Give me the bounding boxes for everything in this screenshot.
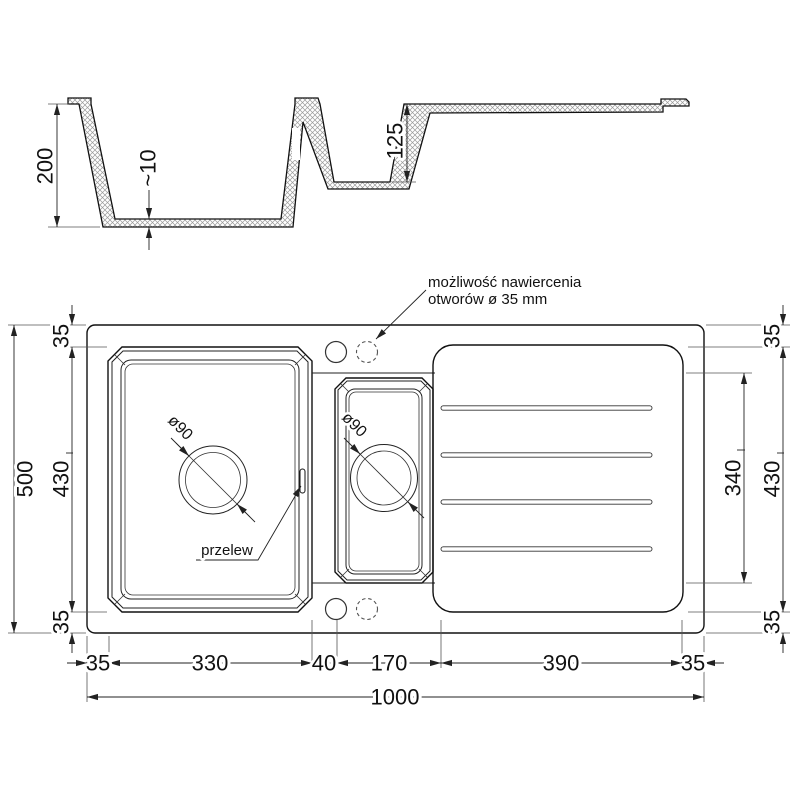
section-depth-value: 200 xyxy=(33,148,58,185)
drain-main-value: ø90 xyxy=(164,412,196,444)
overflow-slot xyxy=(300,469,305,493)
section-material-profile xyxy=(68,98,689,227)
bottom-chain-3: 40 xyxy=(312,651,336,676)
bottom-chain-4: 170 xyxy=(371,651,408,676)
tap-hole-top xyxy=(326,342,347,363)
sink-outer-edge xyxy=(87,325,704,633)
dim-floor-thickness: ~10 xyxy=(136,149,161,250)
dim-drain-small: ø90 xyxy=(338,409,424,518)
drill-note-line1: możliwość nawiercenia xyxy=(428,274,582,291)
right-chain-bottom: 35 xyxy=(760,610,785,634)
bottom-chain-5: 390 xyxy=(543,651,580,676)
bottom-chain-6: 35 xyxy=(681,651,705,676)
right-chain-mid: 430 xyxy=(760,461,785,498)
left-chain-bottom: 35 xyxy=(49,610,74,634)
overflow-text: przelew xyxy=(201,542,253,559)
overflow-label: przelew xyxy=(196,486,301,560)
cross-section-view: 200 ~10 125 xyxy=(33,98,690,250)
dim-drainer-span: 340 xyxy=(721,373,746,583)
bottom-chain-1: 35 xyxy=(86,651,110,676)
bottom-chain-2: 330 xyxy=(192,651,229,676)
dim-right-chain: 35 430 35 xyxy=(760,305,785,653)
tap-hole-bottom xyxy=(326,599,347,620)
dim-overall-height: 500 xyxy=(13,325,38,633)
left-chain-top: 35 xyxy=(49,324,74,348)
overall-height-value: 500 xyxy=(13,461,38,498)
dim-drain-main: ø90 xyxy=(164,412,255,522)
overflow-channel-gap xyxy=(292,128,300,160)
tap-hole-optional-top xyxy=(357,342,378,363)
small-bowl-depth-value: 125 xyxy=(383,123,408,160)
dim-left-chain: 35 430 35 xyxy=(49,305,74,653)
plan-view: możliwość nawiercenia otworów ø 35 mm pr… xyxy=(87,274,704,633)
drainer-span-value: 340 xyxy=(721,460,746,497)
drill-note: możliwość nawiercenia otworów ø 35 mm xyxy=(376,274,582,339)
tap-hole-optional-bottom xyxy=(357,599,378,620)
drain-groove-2 xyxy=(441,453,652,457)
drain-small-value: ø90 xyxy=(338,409,370,441)
drain-groove-4 xyxy=(441,547,652,551)
overall-width-value: 1000 xyxy=(371,685,420,710)
drain-groove-3 xyxy=(441,500,652,504)
left-chain-mid: 430 xyxy=(49,461,74,498)
drill-note-line2: otworów ø 35 mm xyxy=(428,291,547,308)
main-bowl xyxy=(108,347,312,612)
dim-bottom-chain: 35 330 40 170 390 35 xyxy=(67,651,724,676)
drainboard xyxy=(433,345,683,612)
drain-groove-1 xyxy=(441,406,652,410)
dim-overall-width: 1000 xyxy=(87,685,704,710)
right-chain-top: 35 xyxy=(760,324,785,348)
floor-thickness-value: ~10 xyxy=(136,149,161,186)
technical-drawing-sink: 200 ~10 125 xyxy=(0,0,800,800)
